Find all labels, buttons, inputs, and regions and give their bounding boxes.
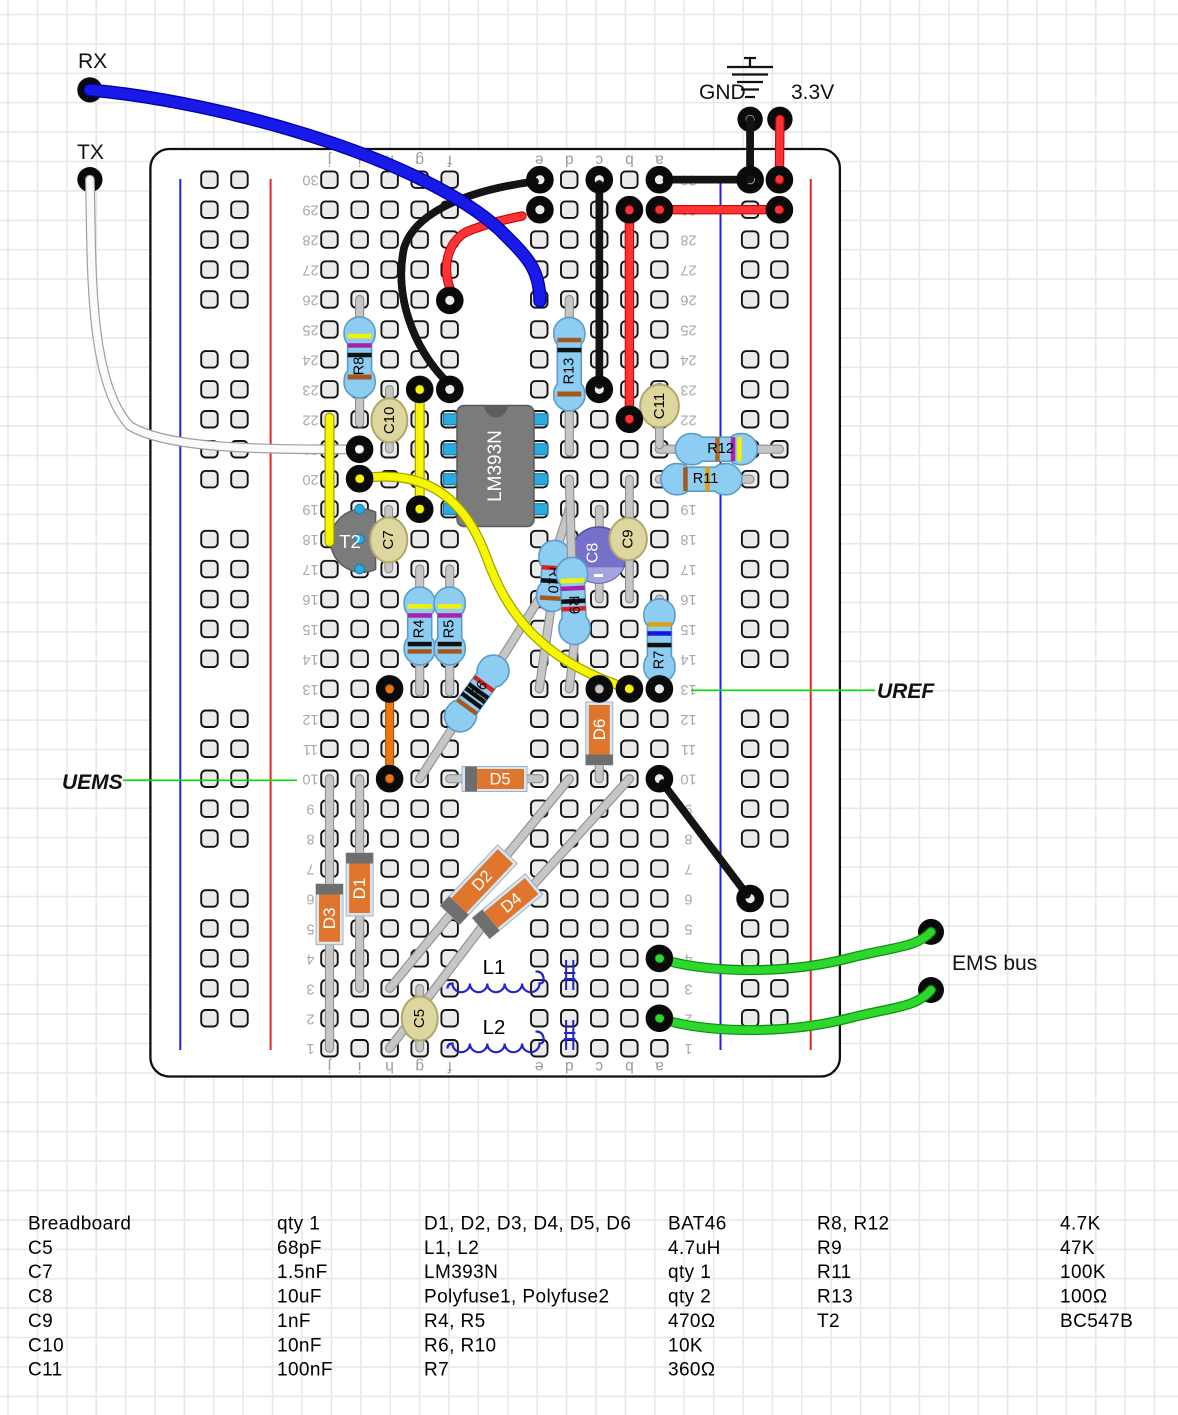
svg-text:R12: R12 [707, 441, 734, 457]
svg-text:R4, R5: R4, R5 [424, 1311, 486, 1332]
svg-text:g: g [415, 1058, 424, 1075]
svg-text:3: 3 [306, 980, 314, 996]
svg-text:100nF: 100nF [277, 1360, 333, 1381]
svg-text:f: f [447, 1058, 452, 1075]
svg-text:2: 2 [306, 1010, 314, 1026]
svg-text:15: 15 [302, 621, 318, 637]
svg-text:100K: 100K [1060, 1262, 1106, 1283]
svg-text:7: 7 [306, 861, 314, 877]
svg-text:R7: R7 [651, 651, 667, 670]
svg-text:15: 15 [680, 621, 696, 637]
svg-text:TX: TX [77, 141, 104, 164]
svg-text:24: 24 [302, 351, 318, 367]
svg-text:d: d [565, 151, 574, 168]
svg-text:D3: D3 [320, 908, 339, 930]
svg-text:L2: L2 [483, 1016, 506, 1039]
svg-text:100Ω: 100Ω [1060, 1287, 1108, 1308]
svg-text:i: i [358, 1058, 361, 1075]
svg-text:b: b [625, 151, 634, 168]
svg-text:LM393N: LM393N [485, 430, 506, 502]
svg-text:c: c [595, 151, 603, 168]
svg-text:11: 11 [303, 741, 318, 757]
svg-text:C9: C9 [28, 1311, 53, 1332]
svg-text:f: f [447, 151, 452, 168]
svg-text:R9: R9 [565, 595, 582, 614]
svg-text:R13: R13 [561, 358, 577, 385]
svg-text:14: 14 [680, 651, 696, 667]
svg-text:j: j [328, 151, 332, 168]
svg-text:25: 25 [680, 321, 696, 337]
svg-text:C8: C8 [585, 543, 602, 564]
svg-text:10uF: 10uF [277, 1287, 322, 1308]
svg-text:10: 10 [680, 771, 696, 787]
svg-text:22: 22 [302, 411, 318, 427]
svg-text:10K: 10K [668, 1335, 703, 1356]
svg-text:T2: T2 [817, 1311, 840, 1332]
svg-text:e: e [535, 151, 544, 168]
svg-text:C7: C7 [380, 530, 397, 549]
svg-text:25: 25 [302, 321, 318, 337]
svg-text:26: 26 [302, 292, 318, 308]
svg-text:12: 12 [680, 711, 696, 727]
svg-text:D5: D5 [489, 771, 510, 789]
svg-text:16: 16 [302, 591, 318, 607]
svg-text:12: 12 [302, 711, 318, 727]
svg-text:C5: C5 [28, 1238, 53, 1259]
svg-text:UREF: UREF [877, 680, 935, 703]
svg-text:4.7uH: 4.7uH [668, 1238, 721, 1259]
svg-text:7: 7 [684, 861, 692, 877]
svg-text:R11: R11 [693, 471, 719, 487]
svg-text:a: a [655, 151, 664, 168]
svg-text:g: g [415, 151, 424, 168]
svg-text:47K: 47K [1060, 1238, 1095, 1259]
svg-text:R8, R12: R8, R12 [817, 1214, 890, 1235]
svg-text:LM393N: LM393N [424, 1262, 498, 1283]
svg-text:23: 23 [680, 381, 696, 397]
svg-text:R13: R13 [817, 1287, 853, 1308]
svg-text:22: 22 [680, 411, 696, 427]
svg-text:BC547B: BC547B [1060, 1311, 1133, 1332]
svg-text:16: 16 [680, 591, 696, 607]
svg-text:29: 29 [302, 202, 318, 218]
svg-text:C7: C7 [28, 1262, 53, 1283]
svg-text:e: e [535, 1058, 544, 1075]
svg-text:360Ω: 360Ω [668, 1360, 716, 1381]
svg-text:a: a [655, 1058, 664, 1075]
svg-text:470Ω: 470Ω [668, 1311, 716, 1332]
svg-text:R11: R11 [817, 1262, 852, 1283]
svg-text:18: 18 [302, 531, 318, 547]
svg-text:C9: C9 [620, 529, 637, 548]
svg-text:14: 14 [302, 651, 318, 667]
svg-text:68pF: 68pF [277, 1238, 322, 1259]
svg-text:D6: D6 [590, 719, 609, 741]
svg-text:T2: T2 [339, 531, 361, 552]
svg-text:28: 28 [680, 232, 696, 248]
svg-text:5: 5 [306, 921, 314, 937]
svg-text:19: 19 [302, 501, 318, 517]
svg-text:BAT46: BAT46 [668, 1214, 727, 1235]
svg-text:R8: R8 [352, 357, 368, 376]
svg-text:qty 1: qty 1 [277, 1214, 320, 1235]
svg-text:20: 20 [302, 471, 318, 487]
svg-text:D1: D1 [350, 878, 369, 900]
svg-text:L1: L1 [483, 956, 506, 979]
svg-text:Polyfuse1, Polyfuse2: Polyfuse1, Polyfuse2 [424, 1287, 609, 1308]
svg-text:23: 23 [302, 381, 318, 397]
svg-text:C8: C8 [28, 1287, 53, 1308]
svg-text:C5: C5 [411, 1009, 428, 1028]
svg-text:R5: R5 [442, 620, 458, 639]
svg-text:1.5nF: 1.5nF [277, 1262, 328, 1283]
svg-text:RX: RX [78, 50, 107, 73]
svg-text:GND: GND [699, 81, 746, 104]
svg-text:10: 10 [302, 771, 318, 787]
svg-text:qty 2: qty 2 [668, 1287, 711, 1308]
svg-text:8: 8 [306, 831, 314, 847]
svg-text:5: 5 [684, 921, 692, 937]
svg-text:D1, D2, D3, D4, D5, D6: D1, D2, D3, D4, D5, D6 [424, 1214, 631, 1235]
svg-text:13: 13 [302, 681, 318, 697]
svg-text:9: 9 [306, 801, 314, 817]
svg-text:C11: C11 [28, 1360, 63, 1381]
svg-text:qty 1: qty 1 [668, 1262, 711, 1283]
svg-text:L1, L2: L1, L2 [424, 1238, 479, 1259]
svg-text:C10: C10 [28, 1335, 64, 1356]
svg-text:UEMS: UEMS [62, 771, 123, 794]
svg-text:8: 8 [684, 831, 692, 847]
svg-text:3.3V: 3.3V [791, 81, 834, 104]
svg-text:C11: C11 [651, 393, 668, 419]
svg-text:3: 3 [684, 980, 692, 996]
svg-text:1: 1 [684, 1040, 692, 1056]
svg-text:4.7K: 4.7K [1060, 1214, 1101, 1235]
svg-text:26: 26 [680, 292, 696, 308]
svg-text:18: 18 [680, 531, 696, 547]
svg-text:h: h [385, 1058, 394, 1075]
svg-text:19: 19 [680, 501, 696, 517]
svg-text:R4: R4 [412, 620, 428, 639]
svg-text:C10: C10 [381, 407, 398, 435]
svg-text:EMS bus: EMS bus [952, 952, 1037, 975]
svg-text:24: 24 [680, 351, 696, 367]
svg-text:10nF: 10nF [277, 1335, 322, 1356]
svg-text:R7: R7 [424, 1360, 449, 1381]
svg-text:13: 13 [680, 681, 696, 697]
svg-text:27: 27 [680, 262, 696, 278]
svg-text:28: 28 [302, 232, 318, 248]
svg-text:27: 27 [302, 262, 318, 278]
svg-text:R6, R10: R6, R10 [424, 1335, 497, 1356]
svg-text:30: 30 [302, 172, 318, 188]
svg-text:1nF: 1nF [277, 1311, 311, 1332]
svg-text:17: 17 [302, 561, 318, 577]
svg-text:17: 17 [680, 561, 696, 577]
svg-text:4: 4 [306, 950, 314, 966]
svg-text:6: 6 [306, 891, 314, 907]
svg-text:j: j [328, 1058, 332, 1075]
svg-text:6: 6 [684, 891, 692, 907]
svg-text:1: 1 [306, 1040, 314, 1056]
svg-text:11: 11 [681, 741, 696, 757]
svg-text:Breadboard: Breadboard [28, 1214, 131, 1235]
svg-text:c: c [595, 1058, 603, 1075]
svg-text:b: b [625, 1058, 634, 1075]
svg-text:R9: R9 [817, 1238, 842, 1259]
svg-text:d: d [565, 1058, 574, 1075]
